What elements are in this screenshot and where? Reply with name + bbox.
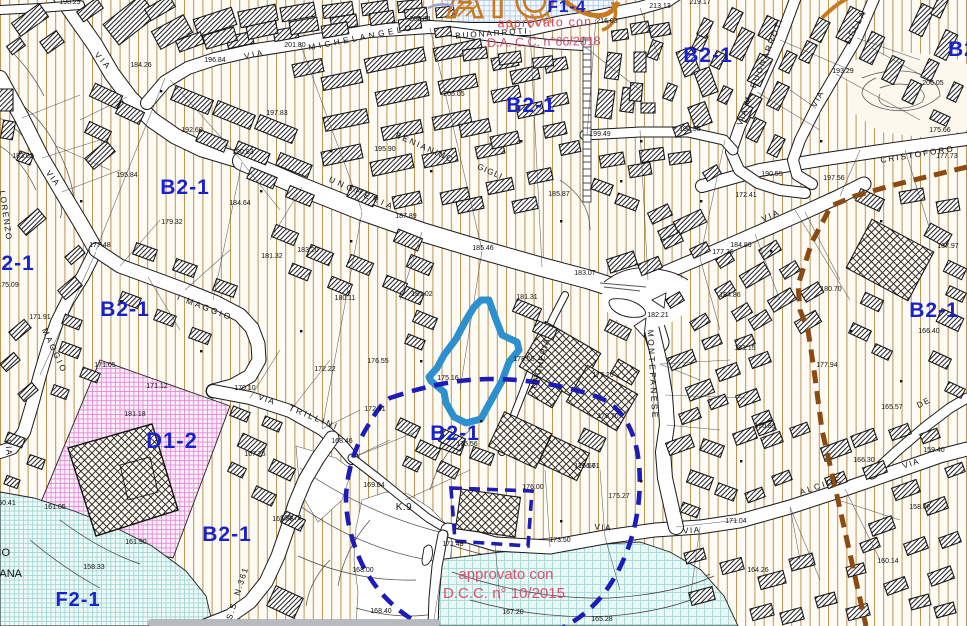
svg-text:180.11: 180.11 (335, 295, 356, 302)
svg-text:170.10: 170.10 (234, 385, 256, 392)
svg-text:197.83: 197.83 (266, 110, 288, 117)
svg-text:B2-1: B2-1 (160, 176, 210, 199)
svg-text:B2-1: B2-1 (683, 44, 733, 67)
svg-text:216.03: 216.03 (596, 18, 618, 25)
svg-text:B2-1: B2-1 (100, 298, 150, 321)
svg-text:B2-2: B2-2 (948, 38, 967, 61)
svg-text:VIA: VIA (3, 439, 14, 456)
svg-text:167.20: 167.20 (502, 609, 524, 616)
svg-text:193.29: 193.29 (832, 68, 854, 75)
svg-text:165.57: 165.57 (881, 404, 903, 411)
svg-text:167.25: 167.25 (244, 451, 266, 458)
svg-text:170.83: 170.83 (754, 423, 776, 430)
svg-text:175.56: 175.56 (456, 441, 478, 448)
svg-text:B2-1: B2-1 (909, 299, 959, 322)
svg-text:195.84: 195.84 (116, 172, 138, 179)
svg-text:181.18: 181.18 (124, 411, 146, 418)
svg-text:172.22: 172.22 (314, 366, 336, 373)
svg-text:201.80: 201.80 (284, 42, 306, 49)
svg-text:187.89: 187.89 (395, 213, 417, 220)
svg-text:183.07: 183.07 (574, 270, 596, 277)
svg-text:197.56: 197.56 (823, 175, 845, 182)
svg-text:164.26: 164.26 (747, 567, 769, 574)
svg-text:D1-2: D1-2 (146, 428, 198, 453)
svg-text:CO: CO (0, 547, 10, 559)
svg-text:181.32: 181.32 (261, 253, 283, 260)
svg-text:190.55: 190.55 (761, 171, 783, 178)
svg-text:165.58: 165.58 (272, 516, 294, 523)
svg-text:B2-1: B2-1 (202, 523, 252, 546)
svg-text:171.12: 171.12 (146, 383, 168, 390)
svg-text:177.26: 177.26 (592, 372, 614, 379)
svg-text:168.00: 168.00 (352, 567, 374, 574)
svg-text:B2-1: B2-1 (506, 94, 556, 117)
svg-text:F2-1: F2-1 (55, 589, 100, 611)
svg-text:ANA: ANA (0, 568, 23, 580)
svg-text:177.73: 177.73 (936, 153, 958, 160)
svg-text:181.02: 181.02 (411, 291, 433, 298)
svg-text:171.04: 171.04 (725, 518, 747, 525)
svg-text:171.05: 171.05 (94, 362, 116, 369)
svg-text:167.97: 167.97 (937, 243, 959, 250)
svg-text:176.67: 176.67 (574, 463, 596, 470)
svg-text:185.46: 185.46 (472, 245, 494, 252)
svg-text:VIA: VIA (683, 524, 702, 535)
svg-text:185.87: 185.87 (548, 191, 570, 198)
svg-text:166.40: 166.40 (918, 328, 940, 335)
svg-text:190.55: 190.55 (679, 126, 701, 133)
svg-text:169.04: 169.04 (363, 482, 385, 489)
svg-text:178.55: 178.55 (513, 356, 535, 363)
svg-text:184.26: 184.26 (130, 62, 152, 69)
svg-text:196.84: 196.84 (204, 57, 226, 64)
svg-text:161.05: 161.05 (44, 504, 66, 511)
svg-text:176.55: 176.55 (367, 358, 389, 365)
svg-text:175.66: 175.66 (929, 127, 951, 134)
svg-text:190.83: 190.83 (232, 149, 254, 156)
svg-text:206.05: 206.05 (922, 80, 944, 87)
svg-text:213.13: 213.13 (649, 3, 671, 10)
svg-text:177.26: 177.26 (712, 249, 734, 256)
svg-text:184.64: 184.64 (229, 200, 251, 207)
svg-text:199.49: 199.49 (589, 131, 611, 138)
svg-text:177.94: 177.94 (816, 362, 838, 369)
svg-text:182.21: 182.21 (647, 312, 669, 319)
svg-text:192.60: 192.60 (181, 127, 203, 134)
svg-text:175.09: 175.09 (0, 282, 19, 289)
svg-text:158.08: 158.08 (909, 504, 931, 511)
svg-text:177.48: 177.48 (89, 242, 111, 249)
svg-text:approvato con: approvato con (458, 566, 553, 583)
svg-text:171.49: 171.49 (442, 541, 464, 548)
svg-text:179.32: 179.32 (161, 219, 183, 226)
svg-text:173.50: 173.50 (549, 537, 571, 544)
svg-text:183.03: 183.03 (12, 153, 34, 160)
svg-text:D.C.C. n° 10/2015: D.C.C. n° 10/2015 (443, 585, 565, 602)
svg-text:160.14: 160.14 (877, 558, 899, 565)
svg-text:181.31: 181.31 (516, 294, 538, 301)
svg-text:159.40: 159.40 (923, 447, 945, 454)
svg-text:165.28: 165.28 (591, 616, 613, 623)
svg-text:181.15: 181.15 (734, 345, 756, 352)
svg-text:195.90: 195.90 (374, 146, 396, 153)
svg-text:198.29: 198.29 (59, 0, 81, 6)
svg-text:183.20: 183.20 (297, 247, 319, 254)
svg-text:161.90: 161.90 (125, 539, 147, 546)
svg-text:166.30: 166.30 (853, 457, 875, 464)
svg-text:171.91: 171.91 (29, 314, 51, 321)
svg-text:F1-4: F1-4 (548, 0, 587, 16)
svg-text:B2-1: B2-1 (0, 252, 35, 275)
svg-text:172.41: 172.41 (364, 406, 386, 413)
svg-text:219.17: 219.17 (689, 0, 711, 6)
svg-text:160.41: 160.41 (0, 500, 16, 507)
svg-text:158.33: 158.33 (83, 564, 105, 571)
svg-text:175.16: 175.16 (437, 375, 459, 382)
svg-text:172.41: 172.41 (735, 192, 757, 199)
svg-text:206.84: 206.84 (409, 16, 431, 23)
svg-text:176.00: 176.00 (522, 484, 544, 491)
svg-text:184.86: 184.86 (730, 242, 752, 249)
svg-text:205.05: 205.05 (443, 91, 465, 98)
svg-text:178.70: 178.70 (597, 413, 619, 420)
svg-text:175.27: 175.27 (608, 493, 630, 500)
svg-text:K.9: K.9 (396, 502, 413, 513)
svg-text:180.70: 180.70 (820, 286, 842, 293)
svg-text:VIA: VIA (594, 521, 613, 532)
svg-text:184.86: 184.86 (719, 292, 741, 299)
svg-text:168.40: 168.40 (370, 608, 392, 615)
svg-text:168.46: 168.46 (331, 438, 353, 445)
